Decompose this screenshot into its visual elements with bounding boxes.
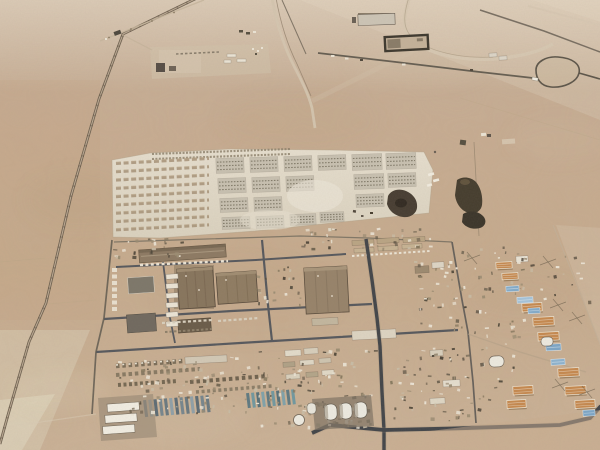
- photo-grain: [0, 0, 600, 450]
- aerial-photo-desert-base: [0, 0, 600, 450]
- aerial-photo-canvas: [0, 0, 600, 450]
